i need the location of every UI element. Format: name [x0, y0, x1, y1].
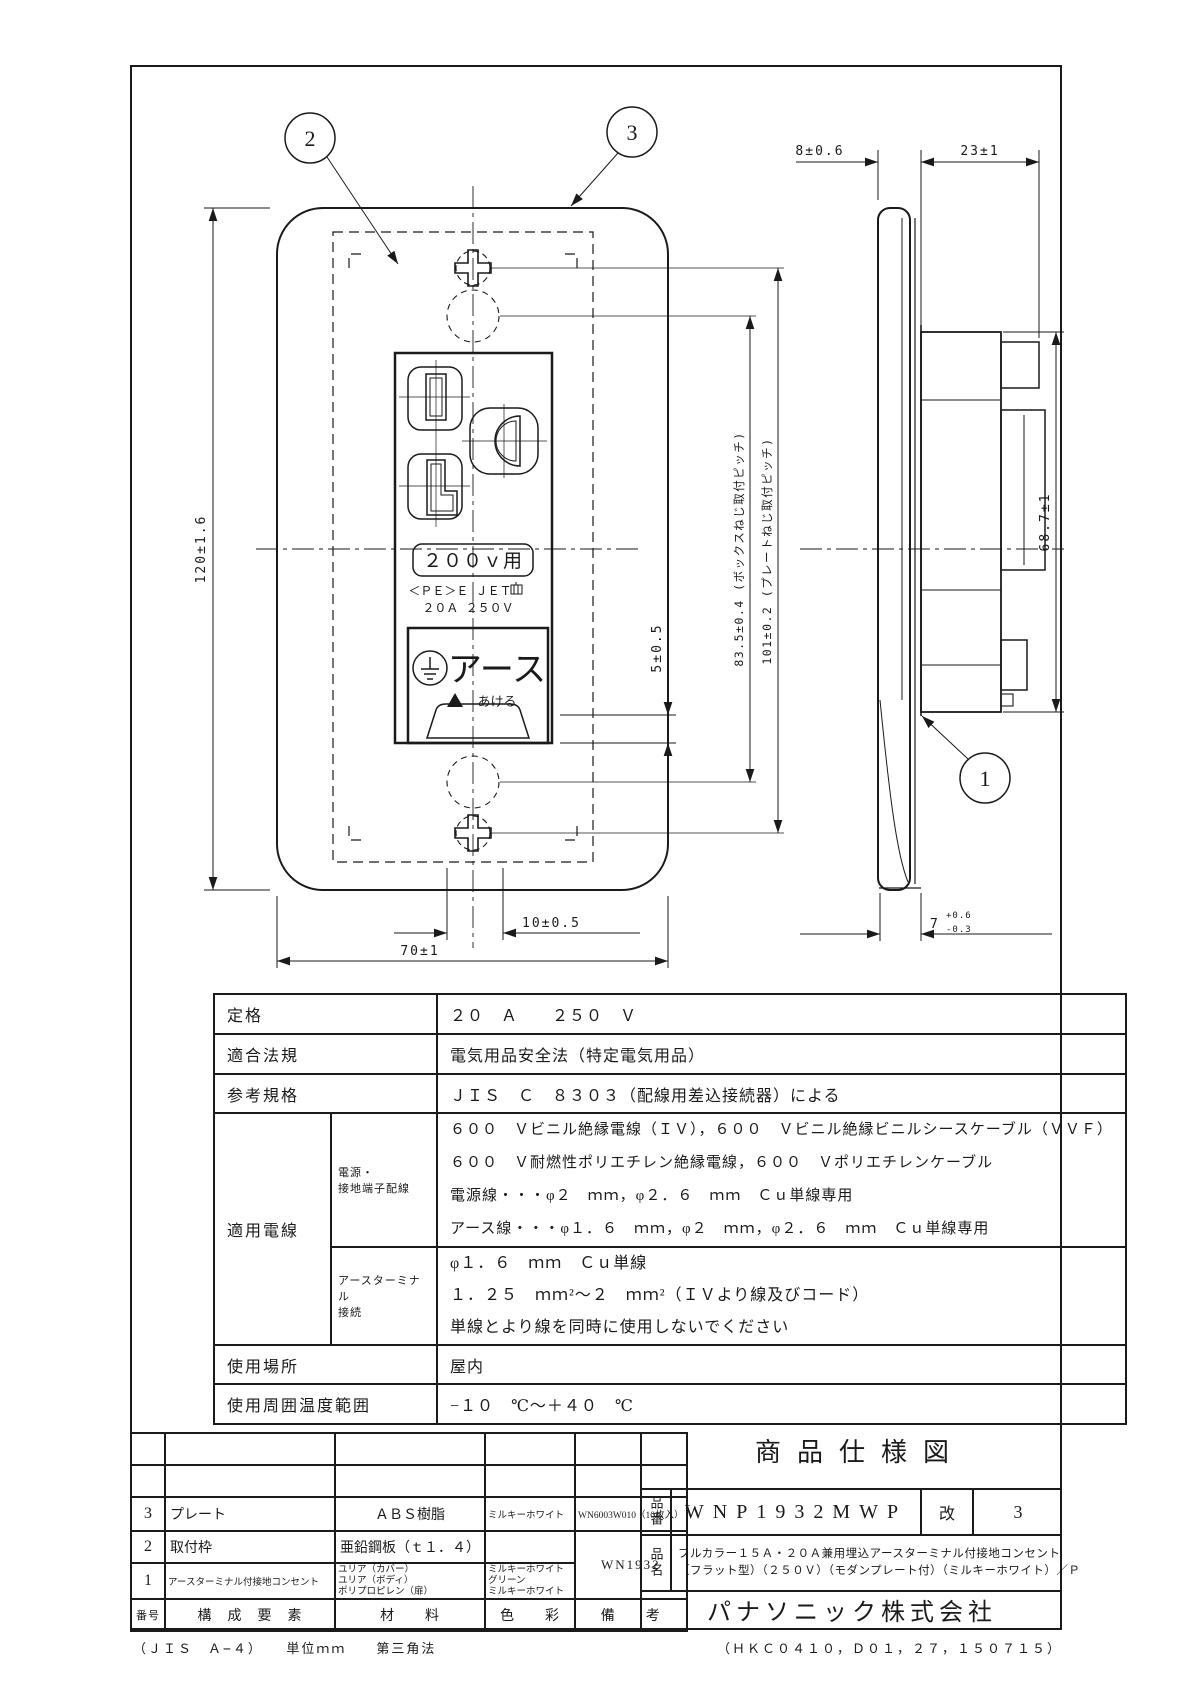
spec-label-law: 適合法規	[214, 1034, 437, 1074]
revision-label: 改	[922, 1490, 974, 1534]
spec-sublabel-earth-terminal: アースターミナル 接続	[331, 1247, 437, 1345]
dim-plate-height: 120±1.6	[194, 515, 209, 584]
spec-value-temperature: −１０ ℃〜＋４０ ℃	[437, 1384, 1126, 1424]
lower-l-blade-slot	[408, 454, 462, 519]
dim-lower-gap: 5±0.5	[650, 623, 665, 672]
footer-document-code: （ＨＫＣ０４１０，Ｄ０１，２７，１５０７１５）	[562, 1638, 1062, 1657]
earth-door-label: アース	[448, 651, 546, 689]
technical-drawing: ２００ｖ用 ＜ＰＥ＞Ｅ ＪＥＴ ２０Ａ ２５０Ｖ アース あける	[0, 0, 1190, 993]
parts-header-row: 番号 構 成 要 素 材 料 色 彩 備 考	[131, 1599, 687, 1631]
dim-box-depth: 23±1	[960, 144, 999, 159]
document-title: 商品仕様図	[642, 1432, 1062, 1490]
product-name-row: 品名 フルカラー１５Ａ・２０Ａ兼用埋込アースターミナル付接地コンセント （フラッ…	[642, 1536, 1062, 1592]
dim-flange-lower-tol: -0.3	[946, 925, 972, 935]
dim-plate-width: 70±1	[400, 944, 439, 959]
spec-value-law: 電気用品安全法（特定電気用品）	[437, 1034, 1126, 1074]
centerlines	[256, 186, 1064, 948]
open-direction-triangle-icon	[447, 693, 463, 707]
dim-knockout-width: 10±0.5	[522, 916, 581, 931]
dim-flange-upper-tol: +0.6	[946, 911, 972, 921]
balloon-3-plate: 3	[627, 120, 638, 145]
dim-plate-screw-pitch: 101±0.2 (プレートねじ取付ピッチ)	[760, 437, 774, 664]
front-view: ２００ｖ用 ＜ＰＥ＞Ｅ ＪＥＴ ２０Ａ ２５０Ｖ アース あける	[256, 186, 1064, 948]
spec-sheet: ２００ｖ用 ＜ＰＥ＞Ｅ ＪＥＴ ２０Ａ ２５０Ｖ アース あける	[0, 0, 1190, 1684]
company-name: パナソニック株式会社	[642, 1592, 1062, 1628]
receptacle-body-profile	[921, 332, 1045, 712]
spec-value-rating: ２０ Ａ ２５０ Ｖ	[437, 994, 1126, 1034]
spec-label-rating: 定格	[214, 994, 437, 1034]
spec-value-standard: ＪＩＳ Ｃ ８３０３（配線用差込接続器）による	[437, 1074, 1126, 1113]
cert-label: ＜ＰＥ＞Ｅ ＪＥＴ	[408, 584, 511, 598]
footer-sheet-info: （ＪＩＳ Ａ−４） 単位ｍｍ 第三角法	[133, 1638, 436, 1657]
spec-value-power-wiring: ６００ Ｖビニル絶縁電線（ＩＶ），６００ Ｖビニル絶縁ビニルシースケーブル（ＶＶ…	[437, 1113, 1126, 1247]
spec-label-standard: 参考規格	[214, 1074, 437, 1113]
dim-box-screw-pitch: 83.5±0.4 (ボックスねじ取付ピッチ)	[732, 431, 746, 666]
product-name-value: フルカラー１５Ａ・２０Ａ兼用埋込アースターミナル付接地コンセント （フラット型）…	[672, 1536, 1086, 1590]
revision-value: 3	[974, 1490, 1062, 1534]
dim-flange-depth: 7	[930, 917, 940, 932]
spec-value-location: 屋内	[437, 1345, 1126, 1384]
dim-body-height: 68.7±1	[1038, 493, 1053, 552]
spec-label-wires: 適用電線	[214, 1113, 331, 1345]
part-number-row: 品番 WNP1932MWP 改 3	[642, 1490, 1062, 1536]
parts-row-3: 3 プレート ＡＢＳ樹脂 ミルキーホワイト WN6003W010（10枚入）	[131, 1497, 687, 1531]
balloon-2-mount-frame: 2	[305, 126, 316, 151]
product-name-label: 品名	[642, 1536, 672, 1590]
parts-row-2: 2 取付枠 亜鉛鋼板（ｔ１．４） WN1932	[131, 1531, 687, 1563]
spec-label-temperature: 使用周囲温度範囲	[214, 1384, 437, 1424]
title-block: 商品仕様図 品番 WNP1932MWP 改 3 品名 フルカラー１５Ａ・２０Ａ兼…	[640, 1432, 1062, 1630]
specification-table: 定格 ２０ Ａ ２５０ Ｖ 適合法規 電気用品安全法（特定電気用品） 参考規格 …	[213, 993, 1127, 1425]
part-number-label: 品番	[642, 1490, 672, 1534]
parts-list-table: 3 プレート ＡＢＳ樹脂 ミルキーホワイト WN6003W010（10枚入） 2…	[130, 1432, 688, 1632]
spec-sublabel-power-wiring: 電源・ 接地端子配線	[331, 1113, 437, 1247]
jet-certification-mark-icon	[511, 582, 522, 594]
open-label: あける	[477, 695, 516, 710]
spec-value-earth-terminal: φ１．６ ｍｍ Ｃｕ単線 １．２５ ｍｍ²〜２ ｍｍ²（ＩＶより線及びコード） …	[437, 1247, 1126, 1345]
spec-label-location: 使用場所	[214, 1345, 437, 1384]
dim-plate-depth: 8±0.6	[795, 144, 844, 159]
upper-blade-slot	[408, 367, 462, 430]
earth-ground-symbol-icon	[413, 651, 447, 685]
mounting-frame-hidden-outline	[333, 232, 593, 862]
part-number-value: WNP1932MWP	[672, 1490, 922, 1534]
rating-label: ２０Ａ ２５０Ｖ	[422, 601, 513, 615]
balloon-1-receptacle: 1	[980, 766, 991, 791]
